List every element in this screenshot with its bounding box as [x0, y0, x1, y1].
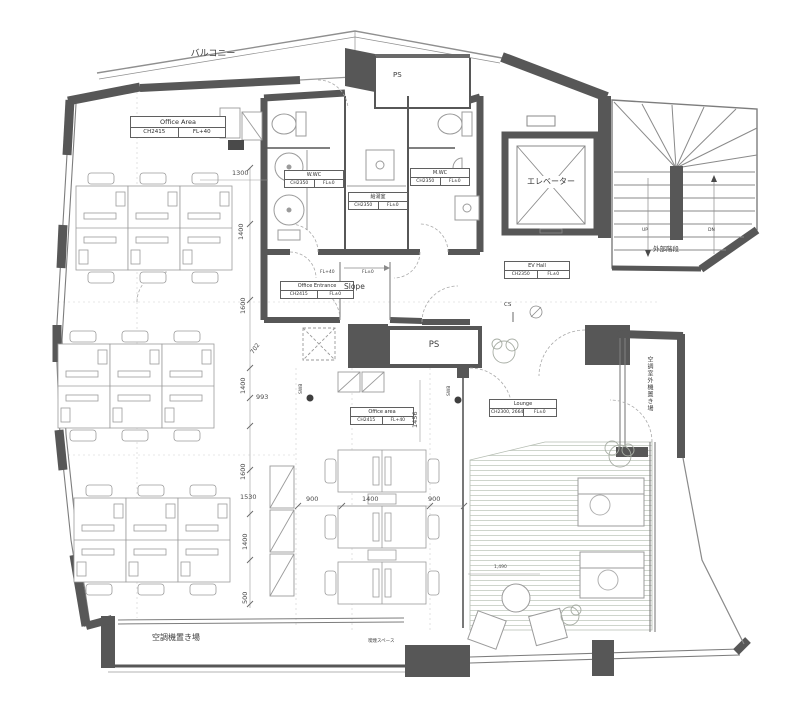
dim-900-right: 900 — [428, 496, 440, 503]
room-ch: CH2350 — [285, 180, 314, 187]
room-name: 給湯室 — [349, 193, 407, 202]
dim-1400-mid: 1400 — [240, 377, 247, 394]
swb-mark-right: SWB — [448, 386, 453, 396]
dim-500: 500 — [242, 592, 249, 604]
floor-plan-drawing — [0, 0, 787, 708]
room-fl: FL+40 — [178, 128, 226, 137]
up-label: UP — [642, 229, 648, 234]
room-name: Office area — [351, 408, 413, 417]
room-label-office-entrance: Office Entrance CH2415 FL±0 — [280, 281, 354, 299]
external-stairs-label: 外部階段 — [636, 246, 696, 253]
dim-1400-bottom: 1400 — [242, 533, 249, 550]
slope-label: Slope — [344, 283, 365, 291]
dim-900-left: 900 — [306, 496, 318, 503]
room-fl: FL±0 — [378, 202, 408, 209]
room-fl: FL±0 — [314, 180, 344, 187]
dim-1400-center: 1400 — [362, 496, 379, 503]
room-name: Lounge — [490, 400, 556, 409]
dim-1490: 1,490 — [494, 566, 507, 571]
left-office-desks-cluster-1 — [76, 173, 232, 283]
room-ch: CH2350 — [411, 178, 440, 185]
dim-1600-lower: 1600 — [240, 463, 247, 480]
room-ch: CH2350 — [349, 202, 378, 209]
swb-mark-left: SWB — [300, 384, 305, 394]
room-name: M.WC — [411, 169, 469, 178]
room-label-kitchenette: 給湯室 CH2350 FL±0 — [348, 192, 408, 210]
room-ch: CH2350 — [505, 271, 537, 278]
room-name: EV Hall — [505, 262, 569, 271]
room-label-ev-hall: EV Hall CH2350 FL±0 — [504, 261, 570, 279]
dim-1300: 1300 — [232, 170, 249, 177]
room-ch: CH2415 — [351, 417, 382, 424]
balcony-label: バルコニー — [163, 50, 263, 59]
ps-shaft-label-top: PS — [393, 72, 402, 79]
room-fl: FL±0 — [537, 271, 570, 278]
floor-plan: バルコニー PS Office Area CH2415 FL+40 W.WC C… — [0, 0, 787, 708]
left-office-desks-cluster-2 — [58, 331, 214, 441]
floor-level-mark-0: FL±0 — [362, 271, 374, 276]
kitchenette-sink — [347, 150, 406, 186]
room-label-office-area-center: Office area CH2415 FL+40 — [350, 407, 414, 425]
floor-level-mark-40: FL+40 — [320, 271, 335, 276]
room-fl: FL±0 — [440, 178, 470, 185]
room-name: W.WC — [285, 171, 343, 180]
dim-993: 993 — [256, 394, 268, 401]
room-name: Office Entrance — [281, 282, 353, 291]
ps-shaft-label-mid: PS — [390, 341, 478, 350]
dn-label: DN — [708, 229, 715, 234]
lounge-deck-floor — [470, 442, 652, 630]
copier — [220, 108, 262, 150]
room-label-m-wc: M.WC CH2350 FL±0 — [410, 168, 470, 186]
center-office-desks — [325, 450, 439, 604]
toilet-fixtures-mens — [438, 112, 479, 220]
room-ch: CH2415 — [281, 291, 317, 298]
ac-unit-area-label: 空調機置き場 — [152, 634, 200, 642]
dim-1400-top: 1400 — [238, 223, 245, 240]
room-label-office-area-top: Office Area CH2415 FL+40 — [130, 116, 226, 138]
room-label-lounge: Lounge CH2300, 2664 FL±0 — [489, 399, 557, 417]
cs-mark: CS — [504, 303, 511, 309]
room-ch: CH2415 — [131, 128, 178, 137]
elevator-label: エレベーター — [506, 178, 596, 186]
external-staircase — [612, 100, 757, 269]
elevator-shaft — [505, 116, 597, 233]
room-fl: FL+40 — [382, 417, 414, 424]
room-label-w-wc: W.WC CH2350 FL±0 — [284, 170, 344, 188]
room-ch: CH2300, 2664 — [490, 409, 523, 416]
dim-1600-upper: 1600 — [240, 297, 247, 314]
dim-1530: 1530 — [240, 494, 257, 501]
left-office-desks-cluster-3 — [74, 485, 230, 595]
smoking-space-label: 喫煙スペース — [368, 640, 394, 645]
ac-outdoor-unit-area-label: 空調室外機置き場 — [646, 356, 652, 436]
room-fl: FL±0 — [523, 409, 557, 416]
room-fl: FL±0 — [317, 291, 354, 298]
shaft-dashed-box — [303, 328, 335, 360]
room-name: Office Area — [131, 117, 225, 128]
dim-1456: 1456 — [412, 411, 419, 428]
